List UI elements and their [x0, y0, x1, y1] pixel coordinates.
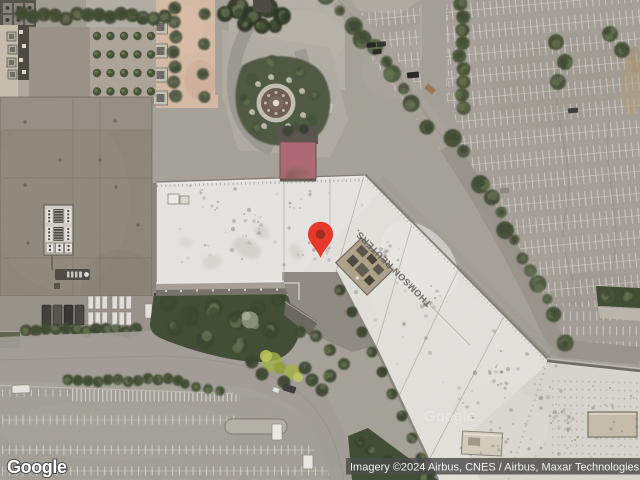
svg-text:Google: Google: [7, 457, 67, 477]
svg-text:Imagery ©2024 Airbus, CNES / A: Imagery ©2024 Airbus, CNES / Airbus, Max…: [350, 462, 640, 474]
svg-text:Google: Google: [424, 408, 475, 425]
